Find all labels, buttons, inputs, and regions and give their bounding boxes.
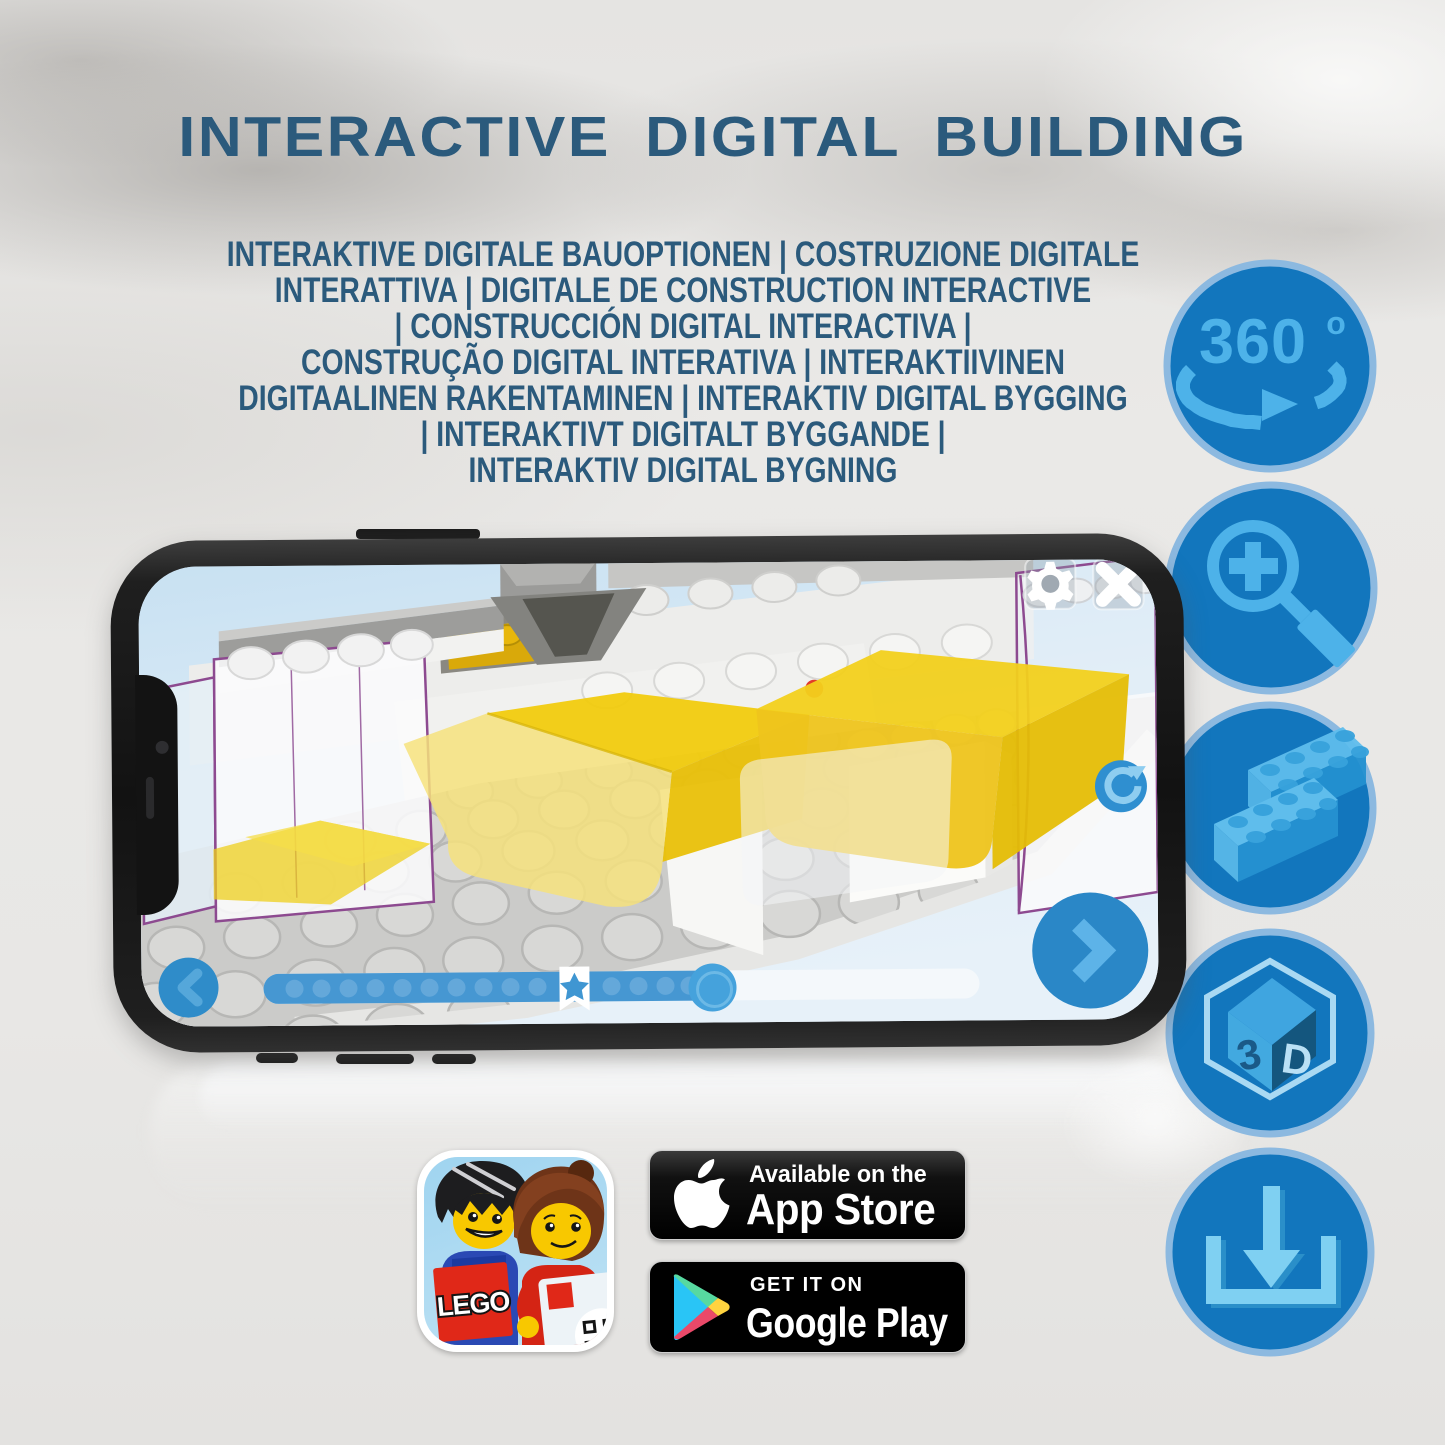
svg-text:o: o bbox=[1326, 305, 1346, 341]
svg-text:D: D bbox=[1279, 1034, 1316, 1085]
svg-text:360: 360 bbox=[1199, 307, 1307, 377]
svg-text:LEGO: LEGO bbox=[436, 1286, 511, 1322]
